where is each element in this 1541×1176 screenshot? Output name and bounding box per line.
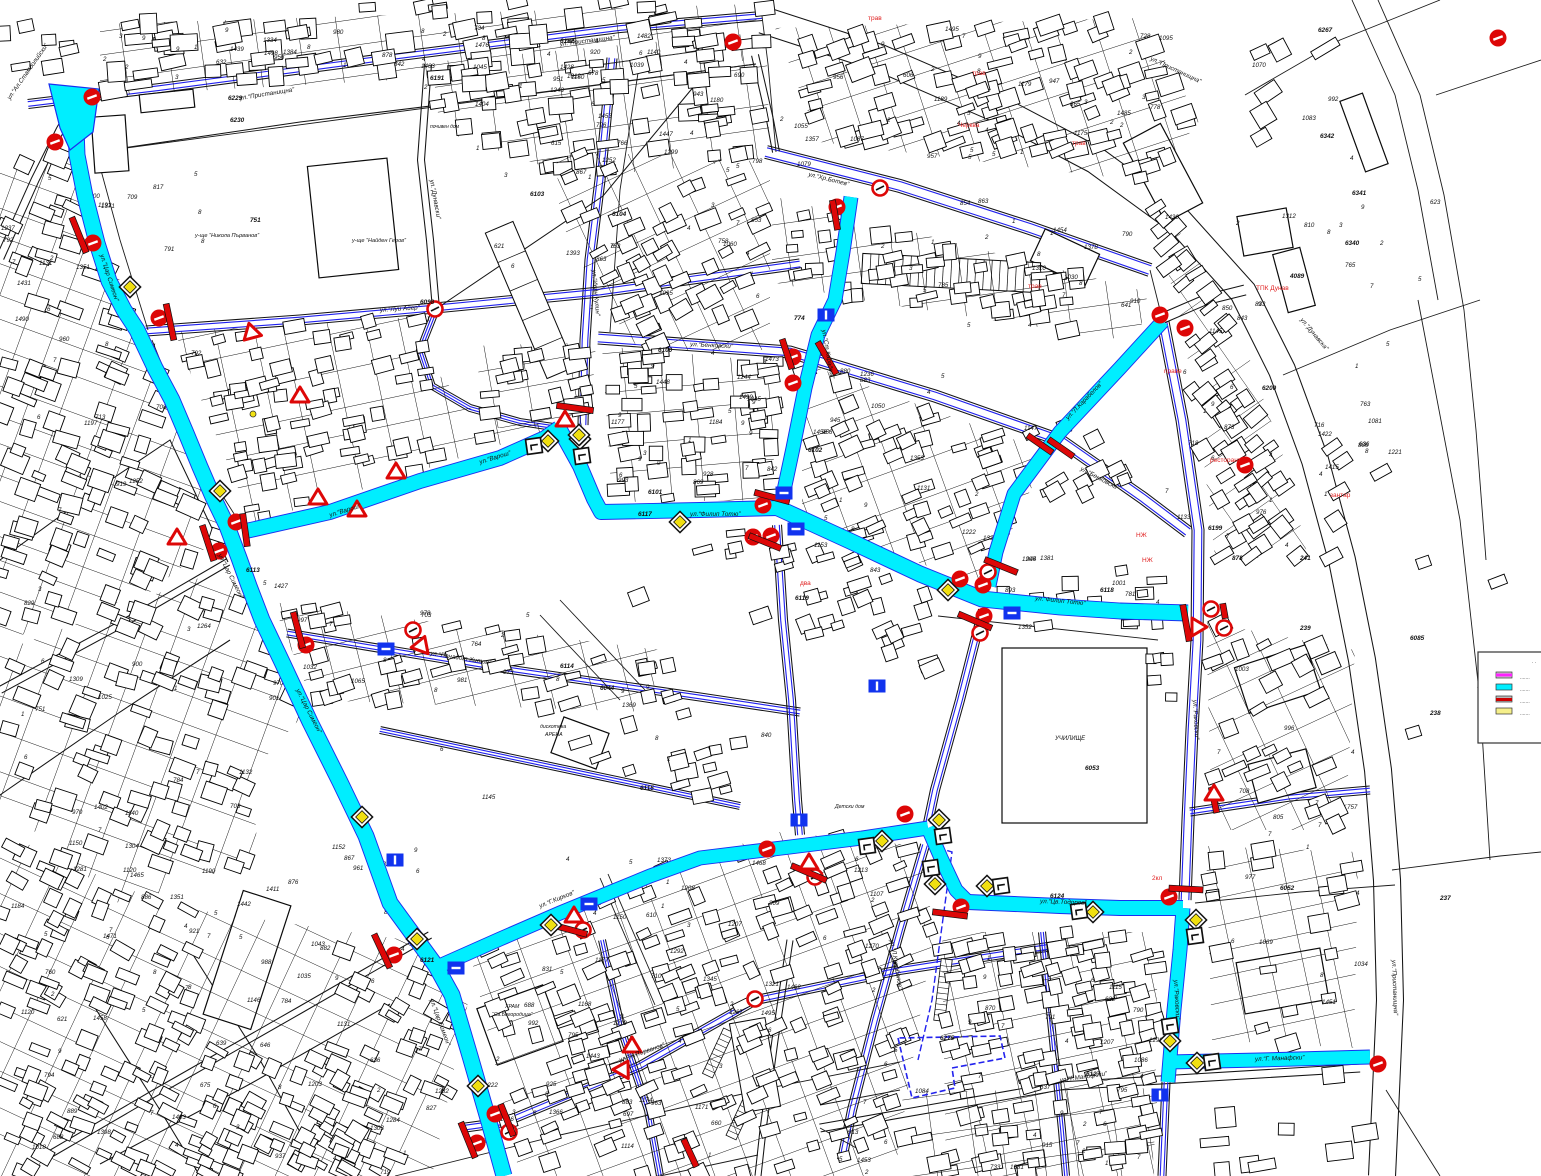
svg-text:3: 3: [1084, 99, 1088, 106]
svg-text:1084: 1084: [915, 1088, 929, 1095]
svg-text:1473: 1473: [765, 356, 779, 363]
svg-text:690: 690: [734, 72, 745, 79]
svg-text:2: 2: [124, 64, 129, 71]
svg-text:1070: 1070: [1252, 62, 1266, 69]
svg-text:1146: 1146: [247, 997, 261, 1004]
svg-text:2: 2: [495, 1056, 500, 1063]
svg-text:1222: 1222: [962, 529, 976, 536]
svg-text:790: 790: [1133, 1007, 1144, 1014]
svg-text:2кл: 2кл: [1152, 875, 1163, 882]
svg-text:1431: 1431: [17, 280, 31, 287]
svg-text:трав: трав: [1028, 283, 1042, 290]
svg-text:9: 9: [968, 1019, 972, 1026]
svg-text:973: 973: [503, 669, 514, 676]
svg-text:2: 2: [974, 491, 979, 498]
svg-text:1451: 1451: [1322, 999, 1336, 1006]
svg-text:900: 900: [132, 661, 143, 668]
svg-text:9: 9: [983, 974, 987, 981]
svg-text:1402: 1402: [94, 804, 108, 811]
svg-text:7: 7: [98, 827, 102, 834]
svg-text:784: 784: [173, 777, 184, 784]
svg-text:1197: 1197: [84, 420, 98, 427]
svg-text:6: 6: [884, 1061, 888, 1068]
svg-text:6118: 6118: [1100, 587, 1114, 594]
svg-text:5: 5: [142, 1007, 146, 1014]
svg-text:6: 6: [511, 263, 515, 270]
svg-text:7: 7: [1268, 831, 1272, 838]
svg-text:1427: 1427: [274, 583, 288, 590]
svg-text:792: 792: [191, 350, 202, 357]
svg-text:8: 8: [655, 735, 659, 742]
svg-text:1252: 1252: [602, 157, 616, 164]
svg-text:703: 703: [230, 803, 241, 810]
svg-text:3: 3: [711, 202, 715, 209]
svg-text:1030: 1030: [1064, 274, 1078, 281]
svg-text:4: 4: [1269, 452, 1273, 459]
svg-text:1284: 1284: [386, 1117, 400, 1124]
svg-text:798: 798: [752, 158, 763, 165]
svg-text:726: 726: [596, 122, 607, 129]
svg-text:6: 6: [591, 101, 595, 108]
svg-text:1498: 1498: [264, 50, 278, 57]
svg-text:5: 5: [894, 1047, 898, 1054]
svg-text:8: 8: [1365, 448, 1369, 455]
svg-text:1422: 1422: [1318, 431, 1332, 438]
svg-text:3: 3: [187, 626, 191, 633]
svg-text:4: 4: [1033, 1132, 1037, 1139]
svg-text:6127: 6127: [1086, 1071, 1101, 1078]
svg-text:1442: 1442: [237, 901, 251, 908]
svg-text:7: 7: [109, 927, 113, 934]
svg-text:1207: 1207: [1100, 1039, 1114, 1046]
svg-text:1: 1: [1105, 1160, 1108, 1167]
svg-text:трав: трав: [1072, 140, 1086, 147]
svg-text:751: 751: [35, 706, 45, 713]
svg-text:7: 7: [736, 220, 740, 227]
svg-text:5: 5: [263, 580, 267, 587]
svg-text:1189: 1189: [934, 96, 948, 103]
svg-text:943: 943: [693, 91, 704, 98]
svg-text:4: 4: [711, 350, 715, 357]
svg-text:4: 4: [927, 389, 931, 396]
svg-text:6114: 6114: [560, 663, 574, 670]
svg-text:8: 8: [383, 657, 387, 664]
svg-text:1: 1: [21, 711, 24, 718]
svg-text:6: 6: [1231, 938, 1235, 945]
svg-text:784: 784: [281, 998, 292, 1005]
svg-text:5: 5: [967, 322, 971, 329]
svg-text:961: 961: [353, 865, 363, 872]
svg-text:1: 1: [750, 271, 753, 278]
svg-text:1: 1: [476, 145, 479, 152]
svg-text:637: 637: [1040, 1084, 1051, 1091]
svg-text:785: 785: [938, 282, 949, 289]
svg-text:4: 4: [687, 225, 691, 232]
svg-text:870: 870: [985, 1005, 996, 1012]
svg-text:5: 5: [48, 175, 52, 182]
svg-text:6: 6: [416, 868, 420, 875]
svg-text:893: 893: [1005, 587, 1016, 594]
svg-text:1208: 1208: [681, 885, 695, 892]
svg-text:6101: 6101: [648, 489, 663, 496]
svg-text:5: 5: [941, 373, 945, 380]
svg-text:1312: 1312: [567, 73, 581, 80]
svg-text:1025: 1025: [98, 694, 112, 701]
svg-text:1035: 1035: [297, 973, 311, 980]
svg-text:4: 4: [422, 56, 426, 63]
svg-text:1: 1: [588, 174, 591, 181]
svg-text:889: 889: [67, 1108, 78, 1115]
svg-text:709: 709: [127, 194, 138, 201]
svg-text:1411: 1411: [266, 886, 279, 893]
svg-text:3: 3: [512, 1109, 516, 1116]
svg-text:241: 241: [1299, 555, 1311, 562]
svg-text:1270: 1270: [865, 943, 879, 950]
svg-text:8: 8: [556, 676, 560, 683]
svg-text:1003: 1003: [1235, 666, 1249, 673]
svg-text:1: 1: [174, 685, 177, 692]
svg-text:1366: 1366: [549, 1109, 563, 1116]
svg-text:632: 632: [1105, 996, 1116, 1003]
svg-text:1213: 1213: [854, 867, 868, 874]
svg-text:9: 9: [225, 27, 229, 34]
svg-text:913: 913: [848, 1129, 859, 1136]
svg-text:1463: 1463: [421, 63, 435, 70]
svg-text:873: 873: [1224, 424, 1235, 431]
svg-text:1237: 1237: [1, 225, 15, 232]
svg-text:827: 827: [426, 1105, 437, 1112]
svg-text:6: 6: [24, 754, 28, 761]
svg-text:2: 2: [423, 84, 428, 91]
svg-text:1120: 1120: [21, 1009, 35, 1016]
svg-text:829: 829: [24, 600, 35, 607]
svg-text:915: 915: [1042, 1142, 1053, 1149]
svg-text:757: 757: [1347, 804, 1358, 811]
svg-text:854: 854: [960, 200, 971, 207]
svg-text:3: 3: [38, 586, 42, 593]
svg-text:7: 7: [1099, 1109, 1103, 1116]
svg-text:621: 621: [494, 243, 504, 250]
svg-text:615: 615: [551, 140, 562, 147]
svg-text:1264: 1264: [197, 623, 211, 630]
svg-text:9: 9: [881, 41, 885, 48]
svg-text:8: 8: [105, 341, 109, 348]
svg-text:Детски дом: Детски дом: [834, 804, 865, 810]
svg-text:996: 996: [1284, 725, 1295, 732]
svg-text:4: 4: [690, 130, 694, 137]
svg-text:8: 8: [434, 687, 438, 694]
svg-text:1: 1: [688, 437, 691, 444]
svg-text:5: 5: [728, 408, 732, 415]
svg-text:1095: 1095: [659, 290, 673, 297]
svg-text:6: 6: [1091, 977, 1095, 984]
svg-text:1490: 1490: [15, 316, 29, 323]
svg-text:901: 901: [269, 695, 279, 702]
svg-text:2: 2: [376, 1087, 381, 1094]
svg-text:4: 4: [184, 923, 188, 930]
svg-text:5: 5: [970, 147, 974, 154]
svg-text:1205: 1205: [1022, 556, 1036, 563]
svg-text:ТПК Дунав: ТПК Дунав: [1256, 285, 1289, 292]
svg-text:1468: 1468: [752, 860, 766, 867]
svg-text:1352: 1352: [1018, 624, 1032, 631]
svg-text:1: 1: [1012, 218, 1015, 225]
svg-text:4: 4: [985, 127, 989, 134]
svg-text:7: 7: [962, 33, 966, 40]
svg-text:. .: . .: [1532, 659, 1536, 665]
svg-text:1415: 1415: [1325, 464, 1339, 471]
svg-text:8: 8: [198, 209, 202, 216]
svg-text:5: 5: [526, 612, 530, 619]
svg-text:1: 1: [708, 1152, 711, 1159]
svg-text:6342: 6342: [1320, 133, 1335, 140]
svg-text:3: 3: [909, 265, 913, 272]
svg-text:1485: 1485: [1117, 110, 1131, 117]
svg-text:1: 1: [839, 497, 842, 504]
svg-text:1482: 1482: [637, 33, 651, 40]
svg-text:4: 4: [593, 910, 597, 917]
svg-text:7: 7: [1370, 283, 1374, 290]
svg-text:876: 876: [288, 879, 299, 886]
svg-text:6200: 6200: [1262, 385, 1277, 392]
svg-text:5: 5: [726, 167, 730, 174]
svg-text:763: 763: [1360, 401, 1371, 408]
svg-text:9: 9: [621, 688, 625, 695]
svg-text:1345: 1345: [703, 976, 717, 983]
svg-text:610: 610: [646, 912, 657, 919]
svg-text:1145: 1145: [482, 794, 496, 801]
svg-text:1140: 1140: [125, 810, 139, 817]
svg-text:9: 9: [1258, 301, 1262, 308]
svg-text:6199: 6199: [1208, 525, 1223, 532]
svg-text:1495: 1495: [945, 26, 959, 33]
svg-text:1: 1: [1269, 497, 1272, 504]
svg-text:.......: .......: [1520, 687, 1530, 693]
svg-text:2: 2: [729, 1001, 734, 1008]
svg-text:1203: 1203: [308, 1081, 322, 1088]
svg-text:1381: 1381: [1010, 1164, 1024, 1171]
svg-text:9: 9: [620, 1013, 624, 1020]
svg-text:2: 2: [886, 117, 891, 124]
svg-text:992: 992: [528, 1020, 539, 1027]
svg-text:9: 9: [176, 46, 180, 53]
svg-text:6: 6: [855, 856, 859, 863]
svg-text:зантар: зантар: [1330, 492, 1351, 499]
svg-text:1281: 1281: [73, 866, 87, 873]
svg-text:3: 3: [175, 74, 179, 81]
svg-text:1083: 1083: [1302, 115, 1316, 122]
svg-text:4: 4: [684, 59, 688, 66]
svg-text:951: 951: [553, 76, 563, 83]
svg-text:1131: 1131: [917, 485, 930, 492]
svg-text:920: 920: [590, 49, 601, 56]
svg-text:7: 7: [863, 1099, 867, 1106]
svg-text:1184: 1184: [709, 419, 723, 426]
svg-text:8: 8: [1037, 251, 1041, 258]
svg-text:2: 2: [779, 116, 784, 123]
svg-text:843: 843: [870, 567, 881, 574]
svg-text:у-ще “Никола Първанов”: у-ще “Никола Първанов”: [194, 233, 260, 239]
svg-text:5: 5: [44, 931, 48, 938]
svg-text:1115: 1115: [1109, 984, 1122, 991]
svg-text:7: 7: [1137, 1154, 1141, 1161]
svg-text:1369: 1369: [622, 702, 636, 709]
svg-text:5: 5: [736, 163, 740, 170]
svg-text:2: 2: [102, 56, 107, 63]
svg-text:1398: 1398: [97, 1129, 111, 1136]
svg-text:1050: 1050: [871, 403, 885, 410]
svg-text:1456: 1456: [813, 429, 827, 436]
svg-text:1454: 1454: [1053, 227, 1067, 234]
svg-text:1179: 1179: [1018, 81, 1032, 88]
svg-text:810: 810: [1304, 222, 1315, 229]
svg-text:1168: 1168: [578, 1001, 592, 1008]
svg-text:1: 1: [931, 239, 934, 246]
svg-text:1334: 1334: [263, 37, 277, 44]
svg-text:1353: 1353: [910, 455, 924, 462]
svg-text:781: 781: [1125, 591, 1135, 598]
svg-text:.......: .......: [1520, 675, 1530, 681]
svg-text:1079: 1079: [797, 161, 811, 168]
svg-text:863: 863: [978, 198, 989, 205]
svg-text:6230: 6230: [230, 117, 245, 124]
svg-text:3: 3: [687, 922, 691, 929]
svg-text:238: 238: [1429, 710, 1441, 717]
svg-text:728: 728: [1140, 33, 1151, 40]
svg-text:5: 5: [214, 910, 218, 917]
svg-text:956: 956: [833, 74, 844, 81]
svg-text:3: 3: [119, 33, 123, 40]
svg-text:9: 9: [646, 684, 650, 691]
svg-text:5: 5: [968, 154, 972, 161]
svg-text:8: 8: [851, 526, 855, 533]
svg-text:5: 5: [676, 1006, 680, 1013]
svg-text:886: 886: [141, 894, 152, 901]
svg-text:8: 8: [307, 44, 311, 51]
svg-text:почивен дом: почивен дом: [430, 124, 460, 130]
svg-text:5: 5: [560, 969, 564, 976]
svg-text:7: 7: [1076, 1140, 1080, 1147]
svg-text:2: 2: [500, 632, 505, 639]
svg-text:1384: 1384: [283, 49, 297, 56]
svg-text:1: 1: [661, 903, 664, 910]
svg-text:1150: 1150: [613, 914, 627, 921]
svg-text:1471: 1471: [103, 933, 117, 940]
svg-text:1177: 1177: [595, 957, 609, 964]
svg-text:1219: 1219: [613, 1020, 627, 1027]
svg-text:883: 883: [860, 377, 871, 384]
svg-text:960: 960: [59, 336, 70, 343]
svg-text:1175: 1175: [1074, 130, 1088, 137]
svg-text:1221: 1221: [1388, 449, 1402, 456]
svg-text:1133: 1133: [1177, 514, 1191, 521]
svg-text:1190: 1190: [202, 868, 216, 875]
svg-text:трав: трав: [868, 15, 882, 22]
svg-text:2: 2: [1081, 1148, 1086, 1155]
svg-text:1: 1: [1020, 149, 1023, 156]
svg-text:878: 878: [1232, 555, 1243, 562]
svg-text:1453: 1453: [598, 113, 612, 120]
svg-text:758: 758: [718, 238, 729, 245]
svg-text:4: 4: [566, 856, 570, 863]
svg-text:4: 4: [547, 51, 551, 58]
svg-text:1462: 1462: [787, 984, 801, 991]
svg-text:5: 5: [602, 77, 606, 84]
svg-text:1458: 1458: [93, 1015, 107, 1022]
svg-text:3: 3: [719, 1063, 723, 1070]
svg-text:6115: 6115: [640, 785, 654, 792]
svg-text:2: 2: [880, 243, 885, 250]
svg-text:606: 606: [903, 72, 914, 79]
svg-text:1439: 1439: [230, 46, 244, 53]
svg-text:716: 716: [1314, 422, 1325, 429]
svg-text:1465: 1465: [130, 872, 144, 879]
svg-text:878: 878: [382, 52, 393, 59]
svg-text:6229: 6229: [228, 95, 243, 102]
svg-text:1495: 1495: [761, 1010, 775, 1017]
svg-text:1: 1: [1306, 844, 1309, 851]
svg-text:5: 5: [839, 1156, 843, 1163]
svg-text:1: 1: [666, 879, 669, 886]
svg-text:1312: 1312: [1282, 213, 1296, 220]
svg-text:1018: 1018: [32, 1144, 46, 1151]
svg-text:1147: 1147: [1024, 425, 1038, 432]
svg-text:795: 795: [568, 1032, 579, 1039]
svg-text:6098: 6098: [420, 299, 435, 306]
svg-text:1180: 1180: [710, 97, 724, 104]
svg-text:8: 8: [533, 1110, 537, 1117]
svg-text:865: 865: [1070, 101, 1081, 108]
svg-text:трав: трав: [972, 70, 986, 77]
svg-text:6103: 6103: [530, 191, 545, 198]
svg-text:809: 809: [769, 900, 780, 907]
svg-text:6121: 6121: [420, 957, 435, 964]
svg-text:7: 7: [1318, 822, 1322, 829]
svg-text:5: 5: [923, 287, 927, 294]
svg-text:751: 751: [250, 217, 261, 224]
svg-text:6: 6: [47, 306, 51, 313]
svg-text:2: 2: [1235, 220, 1240, 227]
svg-text:8: 8: [545, 1091, 549, 1098]
svg-text:697: 697: [623, 1111, 634, 1118]
svg-text:925: 925: [546, 1081, 557, 1088]
svg-text:921: 921: [189, 928, 199, 935]
svg-text:1: 1: [403, 1150, 406, 1157]
svg-text:1045: 1045: [473, 64, 487, 71]
svg-text:675: 675: [200, 1082, 211, 1089]
svg-text:869: 869: [693, 479, 704, 486]
svg-text:1252: 1252: [129, 478, 143, 485]
svg-text:1086: 1086: [1134, 1057, 1148, 1064]
svg-text:9: 9: [414, 847, 418, 854]
svg-text:.......: .......: [1520, 699, 1530, 705]
svg-text:1145: 1145: [1209, 328, 1223, 335]
svg-text:8: 8: [1079, 280, 1083, 287]
svg-text:963: 963: [651, 1100, 662, 1107]
svg-text:1: 1: [194, 44, 197, 51]
svg-text:1447: 1447: [659, 131, 673, 138]
svg-text:623: 623: [1430, 199, 1441, 206]
svg-text:3: 3: [643, 450, 647, 457]
svg-text:6: 6: [213, 1103, 217, 1110]
svg-text:4: 4: [1351, 749, 1355, 756]
svg-text:976: 976: [1256, 509, 1267, 516]
svg-text:710: 710: [651, 973, 662, 980]
svg-text:4: 4: [1028, 322, 1032, 329]
svg-text:2: 2: [1082, 1121, 1087, 1128]
svg-text:5: 5: [1418, 276, 1422, 283]
svg-text:937: 937: [275, 1153, 286, 1160]
